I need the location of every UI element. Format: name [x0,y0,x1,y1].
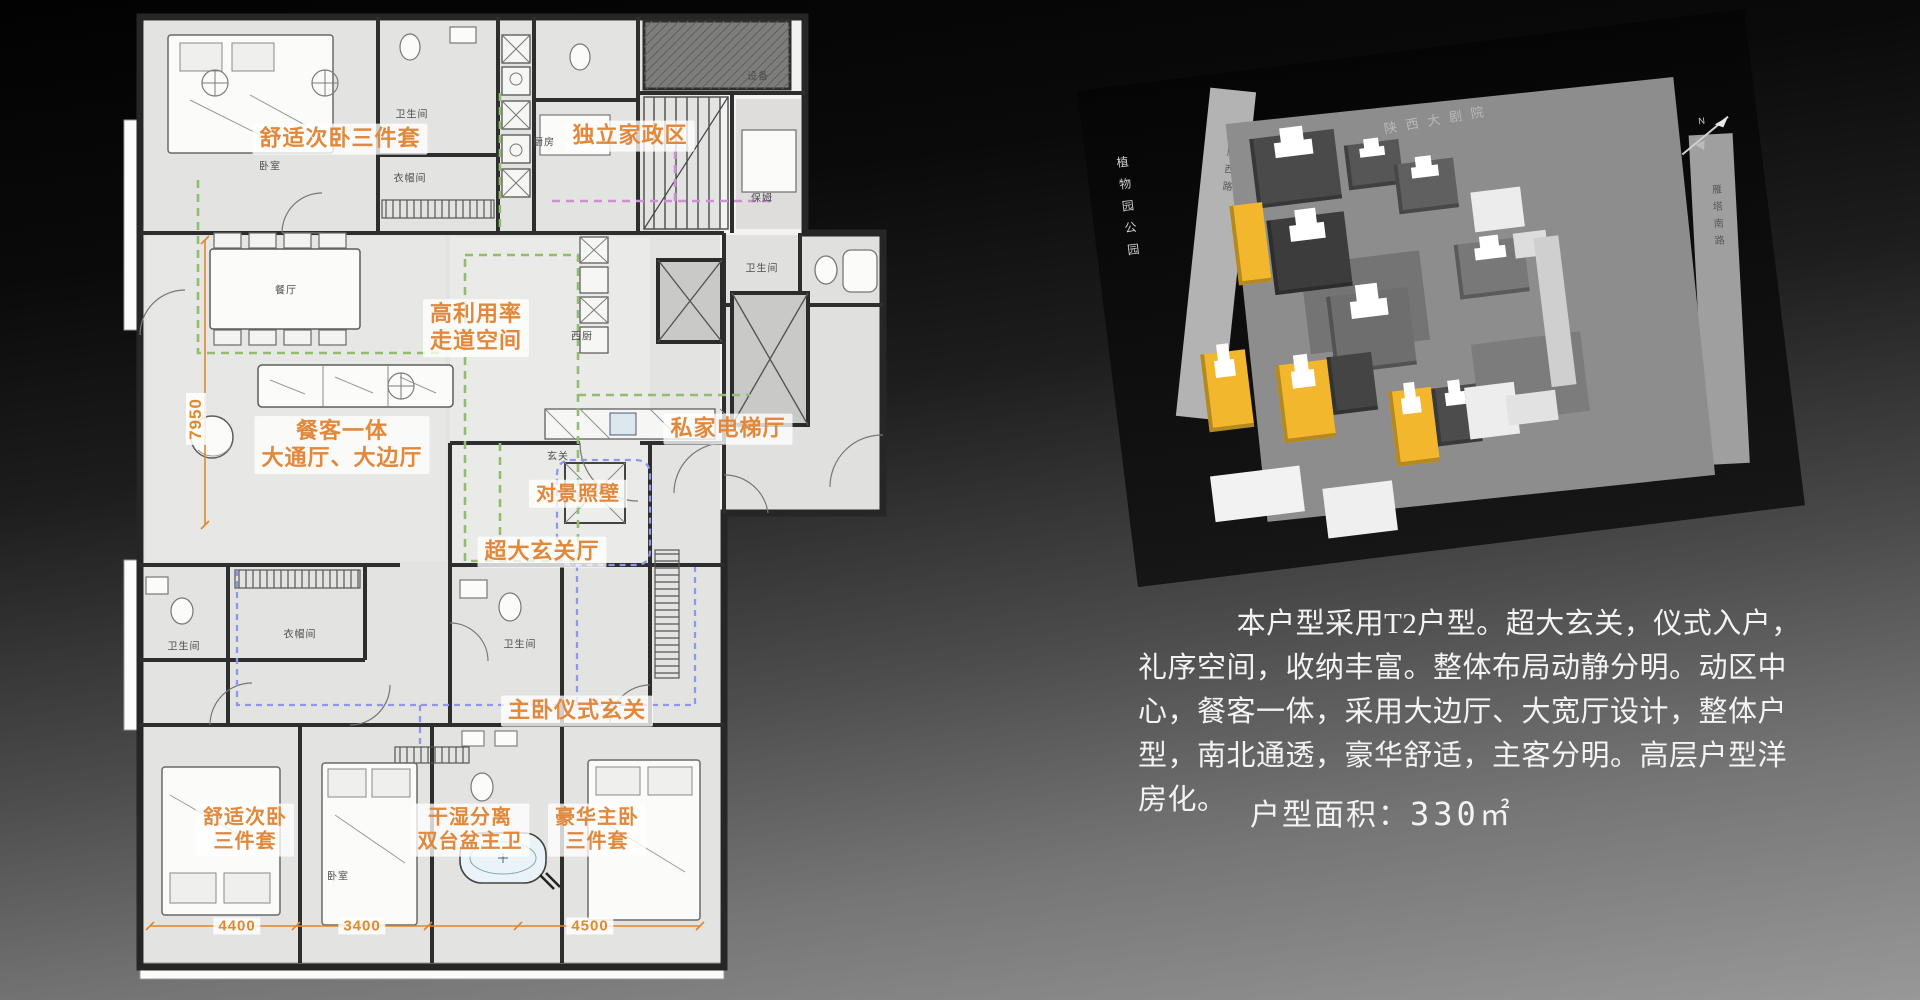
room-label-kitchen: 厨房 [533,134,555,149]
room-label-dining: 餐厅 [275,282,297,297]
annotation-high-utilization-corridor: 高利用率 走道空间 [423,299,529,357]
room-label-closet-top: 衣帽间 [394,170,427,185]
room-label-foyer: 玄关 [547,448,569,463]
room-label-nanny: 保姆 [751,190,773,205]
annotation-comfort-second-bedroom-suite-top: 舒适次卧三件套 [252,124,427,155]
site-plan-frame: 植物园公园 慈恩西路 雁塔南路 [1077,9,1805,587]
dimension-3400: 3400 [338,918,385,935]
highlight-tower-3 [1275,359,1336,443]
building-gray-4 [1266,211,1353,295]
room-label-bath-top: 卫生间 [396,106,429,121]
annotation-comfort-second-bedroom-suite-bottom: 舒适次卧 三件套 [196,804,294,857]
room-label-bedroom-bottom: 卧室 [327,868,349,883]
highlight-tower-4 [1388,387,1440,467]
dimension-7950: 7950 [186,393,206,445]
room-label-bath-wing: 卫生间 [746,260,779,275]
building-gray-1 [1249,129,1342,209]
building-gray-3 [1393,157,1459,214]
room-label-closet-mid: 衣帽间 [284,626,317,641]
annotation-master-ceremonial-entry: 主卧仪式玄关 [501,696,653,727]
annotation-dining-living-combined: 餐客一体 大通厅、大边厅 [254,416,429,474]
annotation-private-elevator-hall: 私家电梯厅 [663,414,792,445]
annotation-luxury-master-bedroom-suite: 豪华主卧 三件套 [548,804,646,857]
dimension-4500: 4500 [566,918,613,935]
right-road-name-label: 雁塔南路 [1707,184,1726,253]
building-gray-7 [1326,352,1378,415]
room-label-bath-midleft: 卫生间 [168,638,201,653]
highlight-tower-2 [1200,349,1254,432]
area-unit: ㎡ [1480,799,1512,832]
dimension-4400: 4400 [213,918,260,935]
north-arrow-icon: N [1669,105,1745,163]
room-label-bath-mid: 卫生间 [504,636,537,651]
floor-plan: 舒适次卧三件套 独立家政区 高利用率 走道空间 餐客一体 大通厅、大边厅 私家电… [110,5,890,990]
building-white-7 [1322,480,1398,538]
room-label-equipment: 设备 [747,68,769,83]
site-plan: 植物园公园 慈恩西路 雁塔南路 [1105,48,1777,548]
annotation-independent-housekeeping-zone: 独立家政区 [565,121,694,152]
building-white-5 [1505,390,1558,426]
svg-text:N: N [1698,116,1706,127]
room-label-bedroom-top: 卧室 [259,158,281,173]
presentation-slide: { "floor_plan": { "accent_color": "#e288… [0,0,1920,1000]
annotation-grand-foyer: 超大玄关厅 [477,537,606,568]
building-white-1 [1470,187,1525,233]
room-label-west-kitchen: 西厨 [571,328,593,343]
annotation-separated-master-bath: 干湿分离 双台盆主卫 [411,804,530,857]
park-name-label: 植物园公园 [1113,155,1143,266]
area-label: 户型面积： [1250,799,1410,832]
area-line: 户型面积：330㎡ [1250,790,1512,834]
annotation-view-screen-wall: 对景照壁 [529,480,627,508]
area-value: 330 [1410,795,1480,833]
